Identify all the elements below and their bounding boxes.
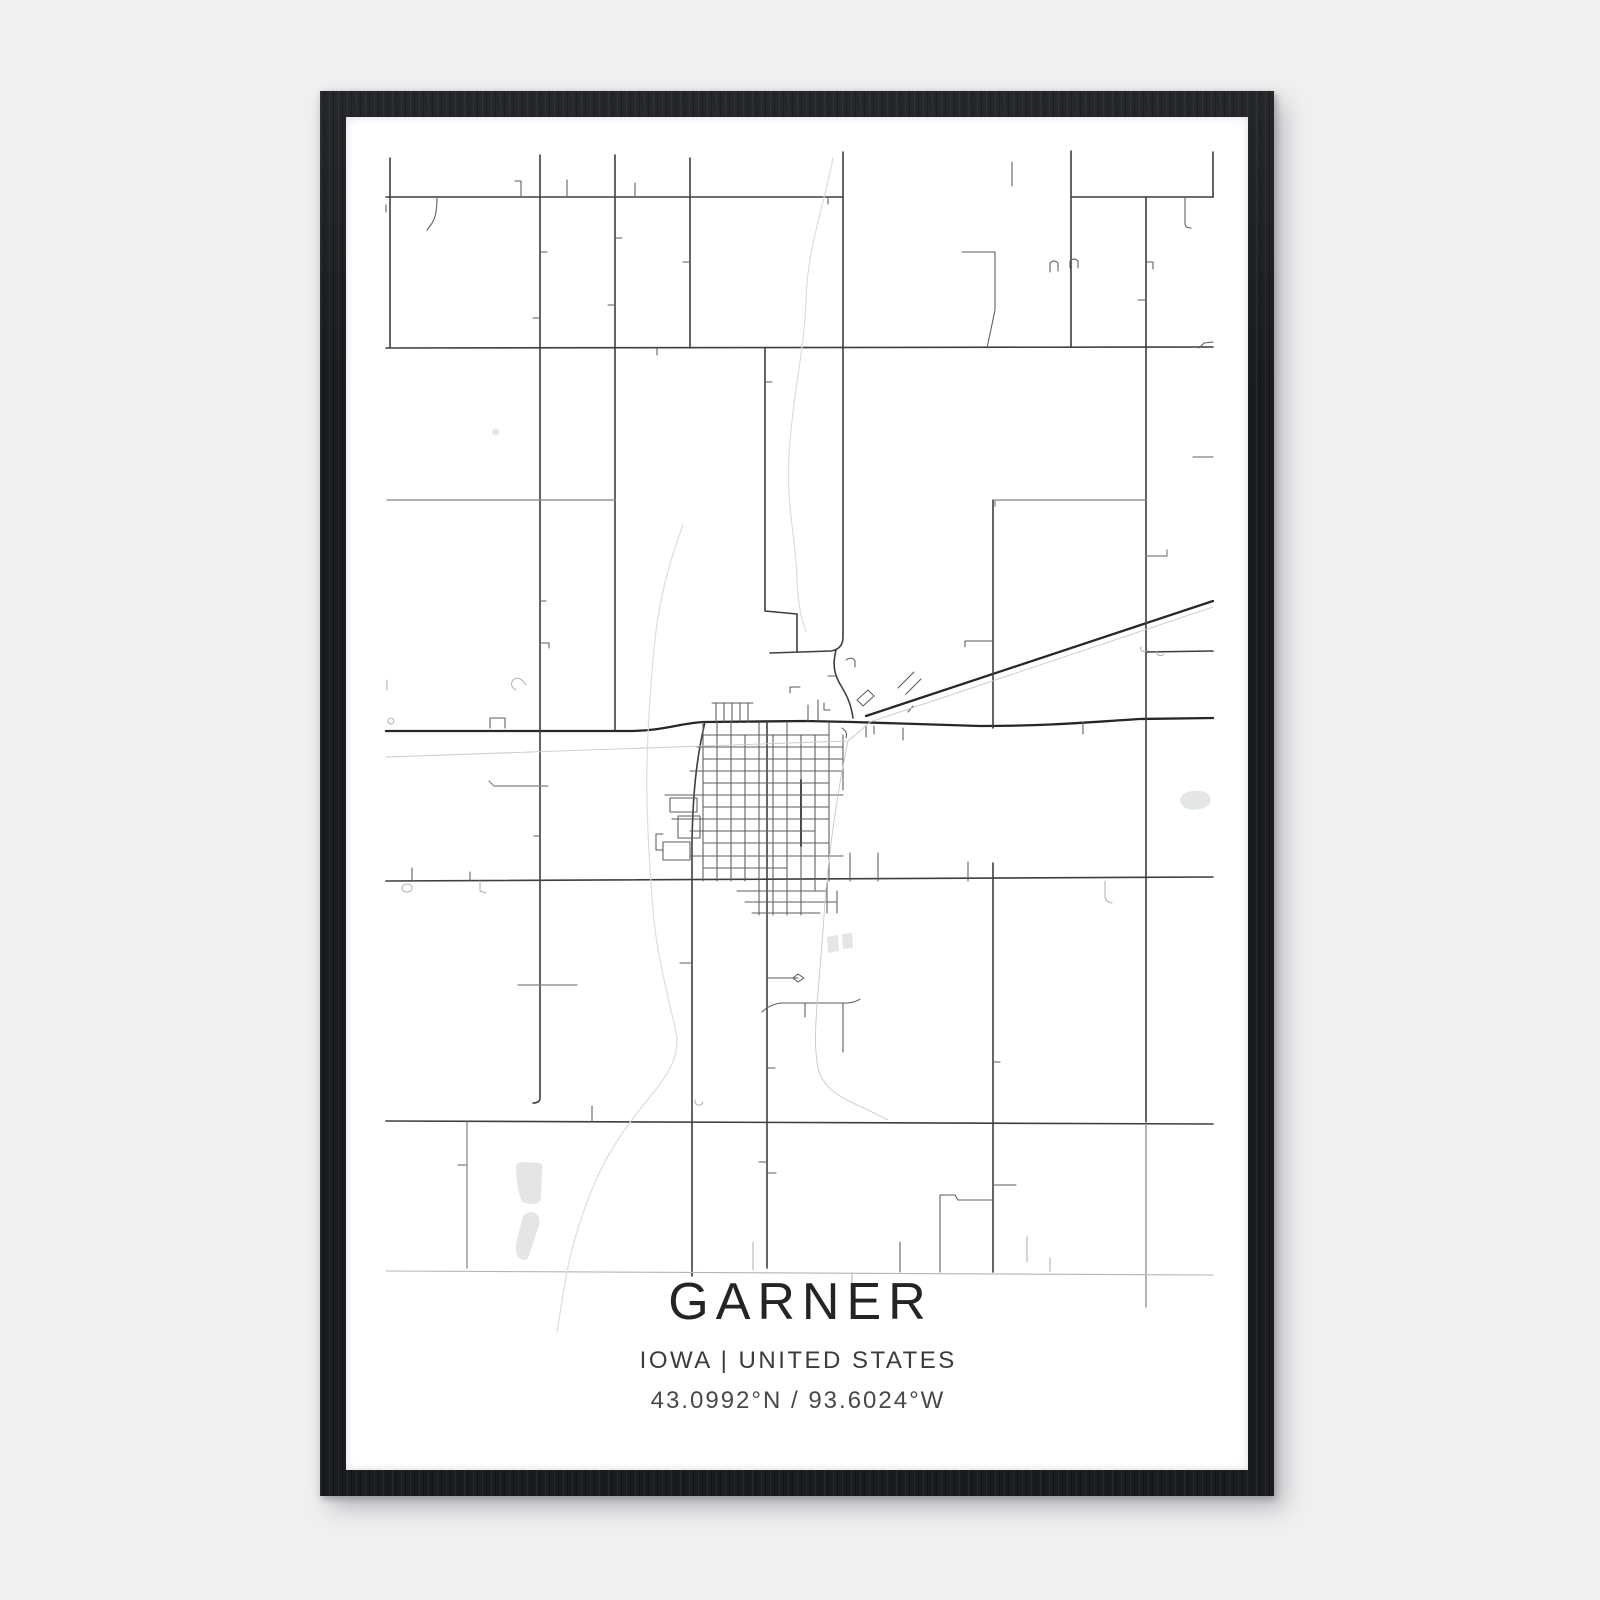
city-map <box>346 117 1248 1470</box>
ponds <box>516 1162 542 1204</box>
road-layers <box>386 151 1213 1332</box>
streams <box>557 158 833 1332</box>
ponds <box>516 1212 540 1260</box>
ponds <box>492 429 499 436</box>
poster-frame: GARNER IOWA | UNITED STATES 43.0992°N / … <box>320 91 1274 1496</box>
highway-roads <box>386 601 1213 731</box>
ponds <box>842 933 853 949</box>
water-layer <box>492 429 1211 1261</box>
bottom-faint-road <box>386 1271 1213 1275</box>
map-poster: GARNER IOWA | UNITED STATES 43.0992°N / … <box>346 117 1248 1470</box>
ponds <box>827 935 839 953</box>
primary-roads <box>386 151 1213 1276</box>
minor-roads <box>386 162 1213 1272</box>
ponds <box>1180 791 1211 810</box>
railroad <box>386 607 1213 1120</box>
secondary-roads <box>387 457 1213 1307</box>
page-background: GARNER IOWA | UNITED STATES 43.0992°N / … <box>0 0 1600 1600</box>
